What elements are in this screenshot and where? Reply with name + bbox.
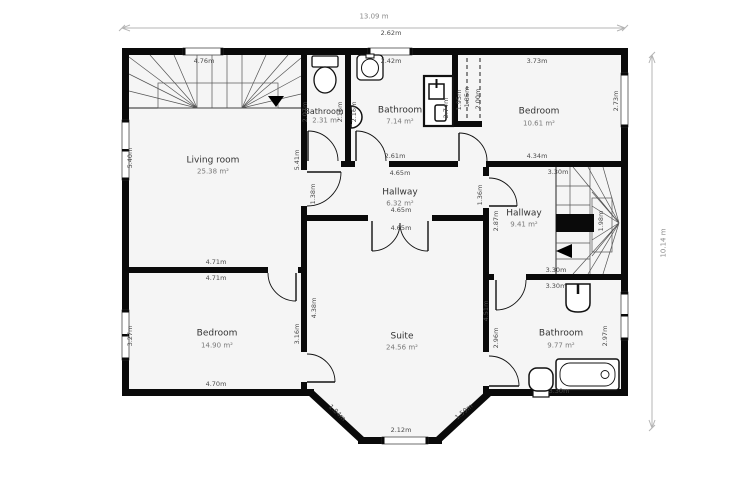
measure-hallway2-bottom: 3.30m	[546, 267, 567, 274]
overall-height-label: 10.14 m	[661, 228, 668, 257]
room-label-bathroom-top: Bathroom	[378, 107, 422, 116]
room-area-suite: 24.56 m²	[386, 345, 418, 352]
room-label-suite: Suite	[391, 333, 414, 342]
window	[382, 437, 428, 444]
measure-wall-mid-bottom: 4.71m	[206, 275, 227, 282]
window	[368, 48, 412, 55]
measure-hallway2-top: 3.30m	[548, 169, 569, 176]
measure-hallway-right: 1.36m	[477, 185, 484, 206]
measure-bathroom3-right: 2.97m	[602, 326, 609, 347]
measure-bedroom2-right: 3.16m	[294, 324, 301, 345]
measure-closet-a: 1.95m	[456, 90, 463, 111]
room-label-hallway-right: Hallway	[506, 210, 542, 219]
measure-closet-c: 2.00m	[475, 89, 482, 110]
measure-closet-b: 1.85m	[464, 87, 471, 108]
measure-bath-top-bottom: 2.61m	[385, 153, 406, 160]
room-label-bathroom-right: Bathroom	[539, 330, 583, 339]
sink-icon	[357, 54, 383, 80]
measure-suite-left: 4.38m	[311, 298, 318, 319]
bathtub-icon	[556, 359, 619, 390]
measure-bath-window-outer: 2.62m	[381, 30, 402, 37]
measure-bathroom3-left: 2.96m	[493, 328, 500, 349]
measure-bathroom3-top: 3.30m	[546, 283, 567, 290]
measure-bedroom2-left: 3.27m	[127, 326, 134, 347]
measure-bedroom-top-right: 2.73m	[613, 91, 620, 112]
measure-bedroom-top-bottom: 4.34m	[527, 153, 548, 160]
room-label-hallway-center: Hallway	[382, 189, 418, 198]
overall-width-label: 13.09 m	[359, 14, 388, 21]
room-label-bedroom-left: Bedroom	[197, 330, 238, 339]
measure-hallway-top: 4.65m	[390, 170, 411, 177]
measure-living-right: 5.41m	[294, 150, 301, 171]
measure-bedroom2-bottom: 4.70m	[206, 381, 227, 388]
measure-suite-right: 4.51m	[483, 301, 490, 322]
measure-bath-top-left: 2.16m	[351, 102, 358, 123]
measure-smallbath-left: 2.07m	[302, 102, 309, 123]
room-label-bedroom-top: Bedroom	[519, 108, 560, 117]
floor-plan: 13.09 m 10.14 m Living room 25.38 m² Bat…	[0, 0, 750, 500]
measure-shower-height: 2.74m	[443, 98, 450, 119]
room-area-living-room: 25.38 m²	[197, 169, 229, 176]
measure-bay-bottom: 2.12m	[391, 427, 412, 434]
measure-bath-window-inner: 2.42m	[381, 58, 402, 65]
room-area-bathroom-right: 9.77 m²	[547, 343, 574, 350]
measure-hallway-bottom: 4.65m	[391, 207, 412, 214]
measure-bathroom3-bottom: 3.30m	[549, 388, 570, 395]
window	[621, 73, 628, 127]
floor-plan-canvas	[0, 0, 750, 500]
measure-living-left: 5.40m	[127, 148, 134, 169]
window	[183, 48, 223, 55]
room-label-living-room: Living room	[187, 157, 240, 166]
sink-icon	[566, 284, 590, 312]
room-area-hallway-right: 9.41 m²	[510, 222, 537, 229]
measure-bedroom-top-width: 3.73m	[527, 58, 548, 65]
room-area-bedroom-left: 14.90 m²	[201, 343, 233, 350]
toilet-icon	[312, 56, 338, 93]
measure-hallway-left: 1.38m	[310, 184, 317, 205]
room-area-bedroom-top: 10.61 m²	[523, 121, 555, 128]
measure-stairs-right-width: 1.98m	[598, 211, 605, 232]
measure-hallway2-left: 2.87m	[493, 211, 500, 232]
measure-stairs-top: 4.76m	[194, 58, 215, 65]
measure-wall-mid-top: 4.71m	[206, 259, 227, 266]
measure-smallbath-right: 2.16m	[337, 102, 344, 123]
measure-suite-top: 4.65m	[391, 225, 412, 232]
room-area-bathroom-top: 7.14 m²	[386, 119, 413, 126]
